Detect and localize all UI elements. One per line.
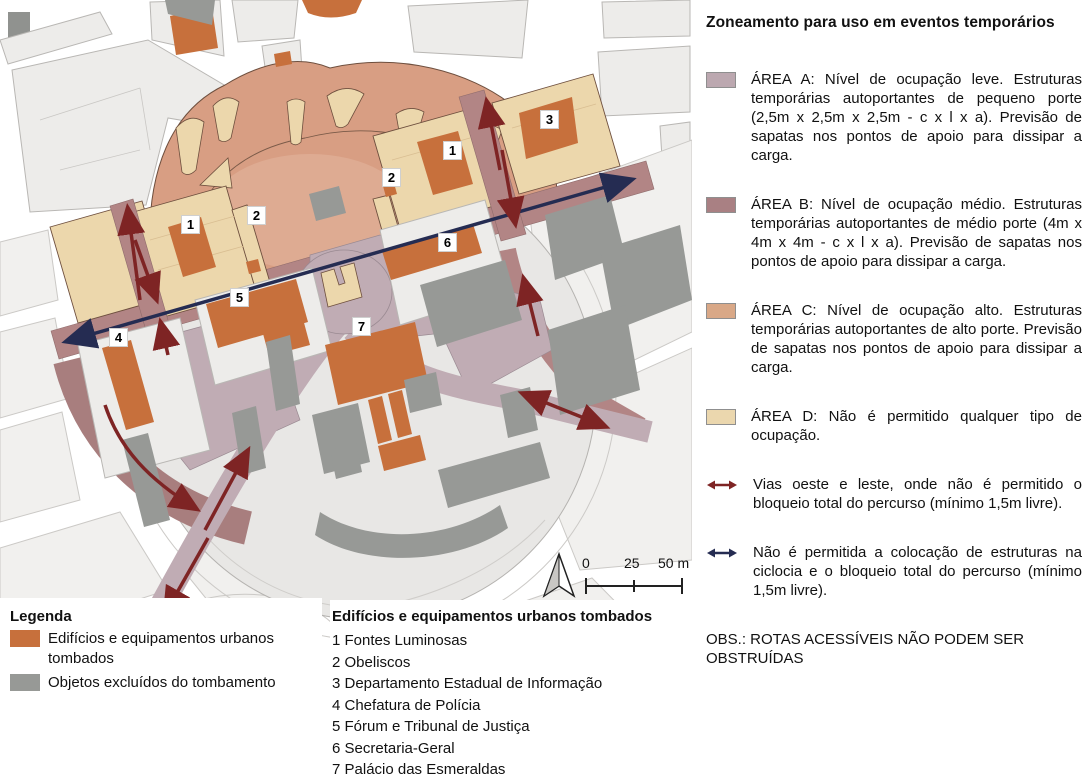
area-d-swatch [706, 409, 736, 425]
map-marker-1-east: 1 [444, 142, 461, 159]
zoning-panel: Zoneamento para uso em eventos temporári… [692, 0, 1092, 776]
excluded-swatch [10, 674, 40, 691]
area-c-swatch [706, 303, 736, 319]
legend: Legenda Edifícios e equipamentos urbanos… [0, 598, 322, 707]
legend-item-listed-text: Edifícios e equipamentos urbanos tombado… [48, 629, 316, 669]
map-marker-2-east: 2 [383, 169, 400, 186]
scale-label-25: 25 [624, 555, 640, 571]
legend-item-excluded-text: Objetos excluídos do tombamento [48, 673, 316, 693]
scale-label-0: 0 [582, 555, 590, 571]
obs-note: OBS.: ROTAS ACESSÍVEIS NÃO PODEM SER OBS… [706, 630, 1086, 668]
list-item: 3 Departamento Estadual de Informação [332, 673, 692, 695]
page: 0 25 50 m 1 2 2 1 3 4 5 6 7 Zoneamento p… [0, 0, 1092, 776]
list-item: 2 Obeliscos [332, 652, 692, 674]
listed-buildings-title: Edifícios e equipamentos urbanos tombado… [332, 608, 692, 625]
route-note-west-east-text: Vias oeste e leste, onde não é permitido… [753, 475, 1082, 513]
zone-item-area-a: ÁREA A: Nível de ocupação leve. Estrutur… [706, 70, 1082, 165]
list-item: 1 Fontes Luminosas [332, 630, 692, 652]
zone-item-area-c: ÁREA C: Nível de ocupação alto. Estrutur… [706, 301, 1082, 377]
navy-double-arrow-icon [706, 546, 738, 560]
legend-title: Legenda [10, 608, 322, 625]
list-item: 4 Chefatura de Polícia [332, 695, 692, 717]
map-marker-5: 5 [231, 289, 248, 306]
route-note-ciclovia-text: Não é permitida a colocação de estrutura… [753, 543, 1082, 600]
listed-buildings-list: Edifícios e equipamentos urbanos tombado… [330, 600, 692, 776]
map-marker-1-west: 1 [182, 216, 199, 233]
legend-item-listed: Edifícios e equipamentos urbanos tombado… [10, 629, 322, 669]
red-double-arrow-icon [706, 478, 738, 492]
area-a-swatch [706, 72, 736, 88]
area-a-text: ÁREA A: Nível de ocupação leve. Estrutur… [751, 70, 1082, 165]
map-marker-7: 7 [353, 318, 370, 335]
area-d-text: ÁREA D: Não é permitido qualquer tipo de… [751, 407, 1082, 445]
scale-label-50m: 50 m [658, 555, 689, 571]
map-marker-4: 4 [110, 329, 127, 346]
area-c-text: ÁREA C: Nível de ocupação alto. Estrutur… [751, 301, 1082, 377]
area-b-text: ÁREA B: Nível de ocupação médio. Estrutu… [751, 195, 1082, 271]
route-note-ciclovia: Não é permitida a colocação de estrutura… [706, 543, 1082, 600]
list-item: 7 Palácio das Esmeraldas [332, 759, 692, 776]
panel-title: Zoneamento para uso em eventos temporári… [706, 14, 1082, 32]
list-item: 6 Secretaria-Geral [332, 738, 692, 760]
zone-item-area-b: ÁREA B: Nível de ocupação médio. Estrutu… [706, 195, 1082, 271]
legend-item-excluded: Objetos excluídos do tombamento [10, 673, 322, 693]
map-marker-2-west: 2 [248, 207, 265, 224]
map-marker-3: 3 [541, 111, 558, 128]
listed-swatch [10, 630, 40, 647]
zone-item-area-d: ÁREA D: Não é permitido qualquer tipo de… [706, 407, 1082, 445]
map-marker-6: 6 [439, 234, 456, 251]
area-b-swatch [706, 197, 736, 213]
list-item: 5 Fórum e Tribunal de Justiça [332, 716, 692, 738]
route-note-west-east: Vias oeste e leste, onde não é permitido… [706, 475, 1082, 513]
